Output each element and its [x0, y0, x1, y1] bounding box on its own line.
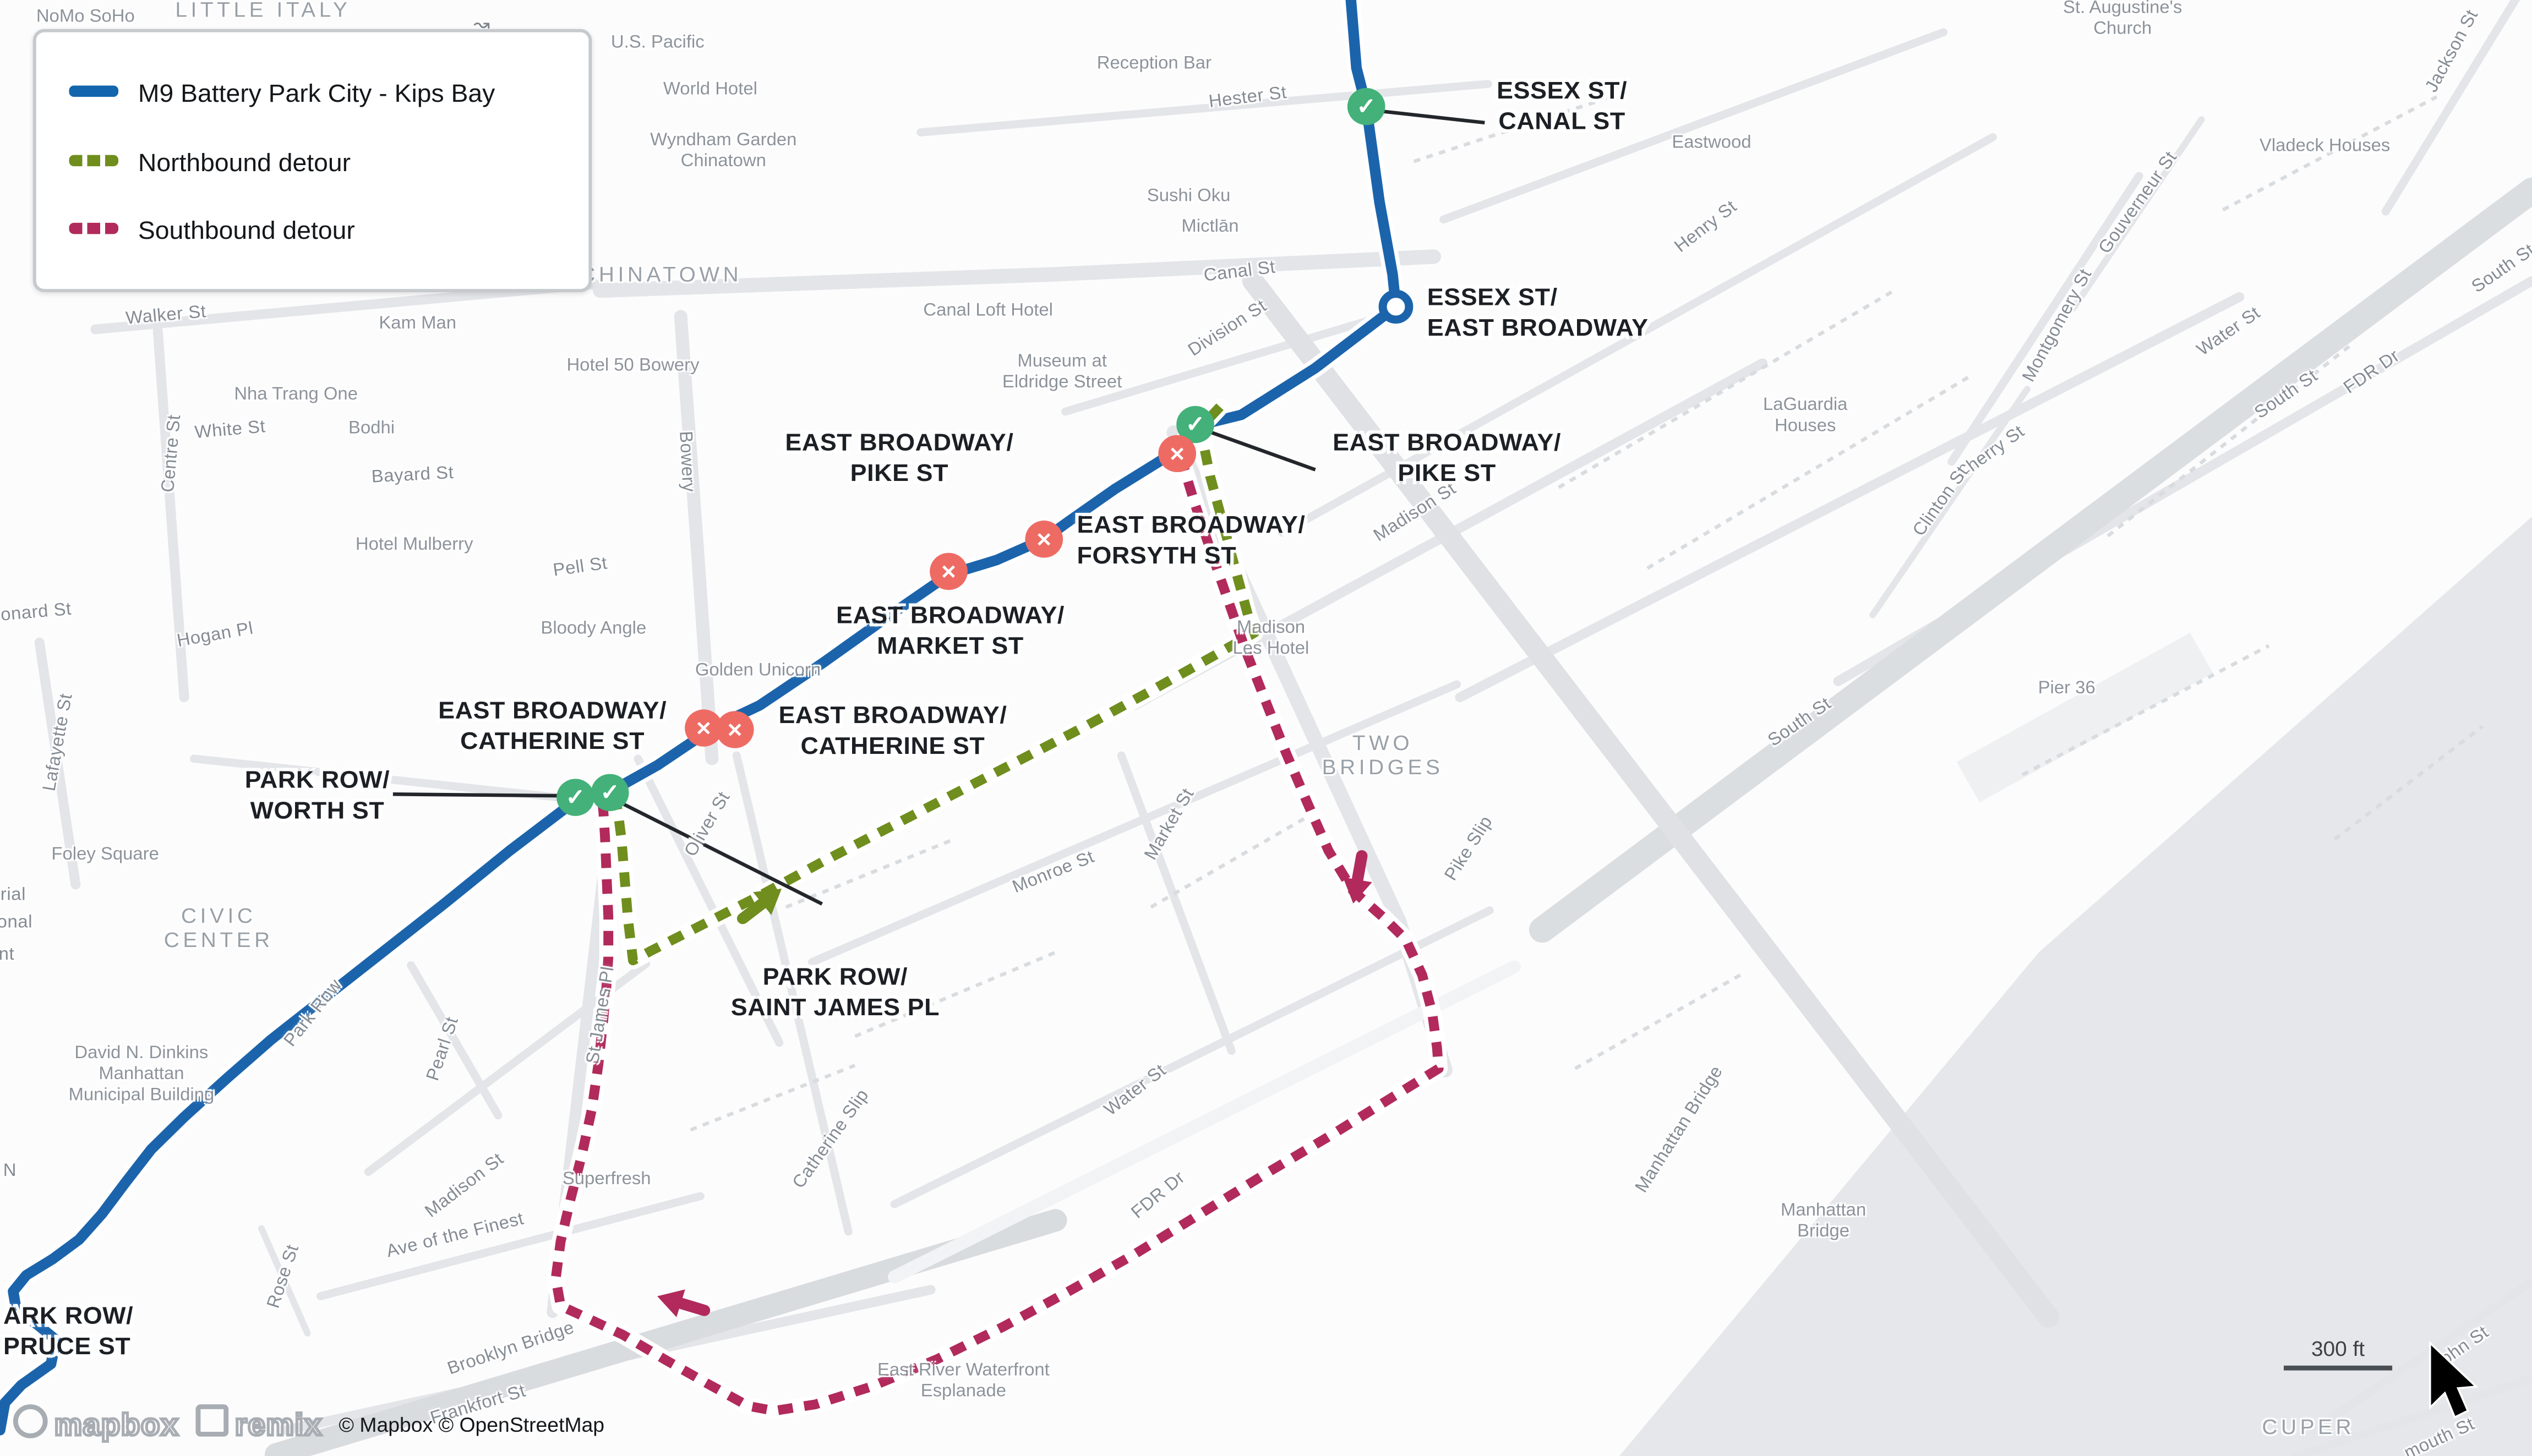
- map-attribution: mapbox remix © Mapbox © OpenStreetMap: [13, 1404, 604, 1444]
- stop-label: PARK ROW/ SAINT JAMES PL: [731, 964, 940, 1024]
- path-dotted: [691, 1065, 855, 1130]
- attribution-copyright[interactable]: © Mapbox © OpenStreetMap: [339, 1413, 605, 1436]
- mapbox-logo[interactable]: mapbox: [13, 1404, 179, 1444]
- street-label: rial: [1, 885, 26, 906]
- poi-label: Hotel 50 Bowery: [566, 356, 699, 377]
- stop-marker-closed-east-broadway-forsyth-st[interactable]: ✕: [1025, 521, 1063, 557]
- poi-label: Wyndham Garden Chinatown: [650, 131, 796, 173]
- stop-marker-closed-east-broadway-pike-st[interactable]: ✕: [1158, 435, 1196, 472]
- poi-label: Mictlān: [1181, 217, 1238, 238]
- street-label: nt: [0, 945, 14, 966]
- mouse-cursor-icon: [2417, 1340, 2482, 1421]
- legend-swatch-dashed-line: [69, 154, 118, 166]
- street-line: [320, 1196, 700, 1296]
- stop-label: ARK ROW/ PRUCE ST: [3, 1302, 133, 1363]
- poi-label: Reception Bar: [1097, 54, 1212, 75]
- area-label: LITTLE ITALY: [175, 0, 351, 22]
- legend-item-1: Northbound detour: [69, 143, 555, 184]
- area-label: CHINATOWN: [580, 262, 742, 287]
- stop-marker-closed-east-broadway-market-st[interactable]: ✕: [930, 553, 968, 590]
- poi-label: Pier 36: [2038, 679, 2096, 700]
- pier-36-shape: [1957, 633, 2213, 802]
- stop-label: ESSEX ST/ EAST BROADWAY: [1427, 284, 1649, 344]
- stop-label-leader-line: [1212, 433, 1315, 469]
- poi-label: Nha Trang One: [234, 385, 358, 406]
- map-viewport: M9 Battery Park City - Kips BayNorthboun…: [0, 0, 2532, 1456]
- street-line: [894, 967, 1514, 1277]
- map-canvas[interactable]: M9 Battery Park City - Kips BayNorthboun…: [0, 0, 2532, 1456]
- stop-label: EAST BROADWAY/ FORSYTH ST: [1077, 512, 1305, 572]
- stop-label: EAST BROADWAY/ MARKET ST: [836, 602, 1065, 663]
- stop-label-leader-line: [1383, 111, 1485, 123]
- street-line: [1174, 433, 1399, 922]
- poi-label: Hotel Mulberry: [356, 535, 473, 556]
- legend-swatch-solid-line: [69, 85, 118, 97]
- stop-label-leader-line: [393, 794, 563, 796]
- legend-item-label: Southbound detour: [138, 212, 355, 253]
- stop-label: EAST BROADWAY/ CATHERINE ST: [438, 697, 667, 758]
- stop-label: EAST BROADWAY/ PIKE ST: [785, 429, 1013, 490]
- poi-label: Bloody Angle: [541, 619, 646, 640]
- poi-label: Golden Unicorn: [695, 661, 821, 682]
- legend-panel: M9 Battery Park City - Kips BayNorthboun…: [33, 29, 592, 292]
- area-label: CUPER: [2262, 1415, 2355, 1439]
- legend-item-label: Northbound detour: [138, 143, 351, 184]
- legend-item-2: Southbound detour: [69, 212, 555, 253]
- poi-label: NoMo SoHo: [36, 7, 135, 28]
- area-label: TWO BRIDGES: [1322, 731, 1444, 780]
- east-river-water: [1619, 517, 2532, 1456]
- stop-label: EAST BROADWAY/ CATHERINE ST: [778, 702, 1007, 763]
- street-label: onal: [0, 913, 32, 934]
- street-line: [1952, 176, 2140, 462]
- poi-label: Vladeck Houses: [2260, 136, 2390, 157]
- area-label: CIVIC CENTER: [164, 904, 274, 953]
- street-label: Bowery: [673, 430, 698, 492]
- remix-logo[interactable]: remix: [195, 1404, 323, 1444]
- poi-label: World Hotel: [663, 80, 757, 101]
- poi-label: Eastwood: [1672, 133, 1751, 154]
- poi-label: St. Augustine's Church: [2063, 0, 2182, 40]
- remix-logo-icon: [195, 1404, 228, 1437]
- legend-item-label: M9 Battery Park City - Kips Bay: [138, 74, 495, 116]
- poi-label: Superfresh: [563, 1169, 651, 1190]
- poi-label: East River Waterfront Esplanade: [877, 1361, 1050, 1403]
- poi-label: Manhattan Bridge: [1781, 1201, 1866, 1243]
- poi-label: Madison Les Hotel: [1233, 618, 1309, 660]
- street-line: [921, 84, 1488, 133]
- poi-label: Bodhi: [348, 419, 395, 440]
- poi-label: Canal Loft Hotel: [923, 301, 1053, 322]
- legend-swatch-dashed-line: [69, 223, 118, 234]
- street-line: [681, 316, 712, 759]
- street-label: Bayard St: [371, 464, 454, 489]
- poi-label: Kam Man: [379, 314, 456, 335]
- poi-label: Sushi Oku: [1147, 187, 1231, 207]
- stop-marker-check-park-row-worth-st[interactable]: ✓: [591, 774, 629, 811]
- stop-label: EAST BROADWAY/ PIKE ST: [1333, 429, 1561, 490]
- poi-label: Foley Square: [51, 845, 159, 866]
- mapbox-logo-icon: [13, 1404, 48, 1438]
- stop-label: PARK ROW/ WORTH ST: [245, 767, 390, 827]
- stop-marker-open-essex-st-east-broadway[interactable]: [1379, 290, 1414, 324]
- scale-bar: 300 ft: [2284, 1337, 2392, 1370]
- poi-label: LaGuardia Houses: [1763, 396, 1847, 437]
- stop-label: ESSEX ST/ CANAL ST: [1497, 78, 1627, 138]
- street-label: N: [3, 1162, 17, 1183]
- path-dotted: [1575, 972, 1747, 1069]
- scale-bar-line: [2284, 1366, 2392, 1370]
- poi-label: Museum at Eldridge Street: [1002, 352, 1122, 394]
- poi-label: David N. Dinkins Manhattan Municipal Bui…: [68, 1044, 214, 1107]
- legend-item-0: M9 Battery Park City - Kips Bay: [69, 74, 555, 116]
- scale-bar-label: 300 ft: [2284, 1337, 2392, 1361]
- stop-marker-check-park-row-worth-st[interactable]: ✓: [556, 779, 594, 815]
- stop-marker-check-essex-st-canal-st[interactable]: ✓: [1347, 88, 1385, 125]
- poi-label: U.S. Pacific: [611, 33, 705, 54]
- stop-marker-closed-east-broadway-catherine-st[interactable]: ✕: [716, 711, 754, 748]
